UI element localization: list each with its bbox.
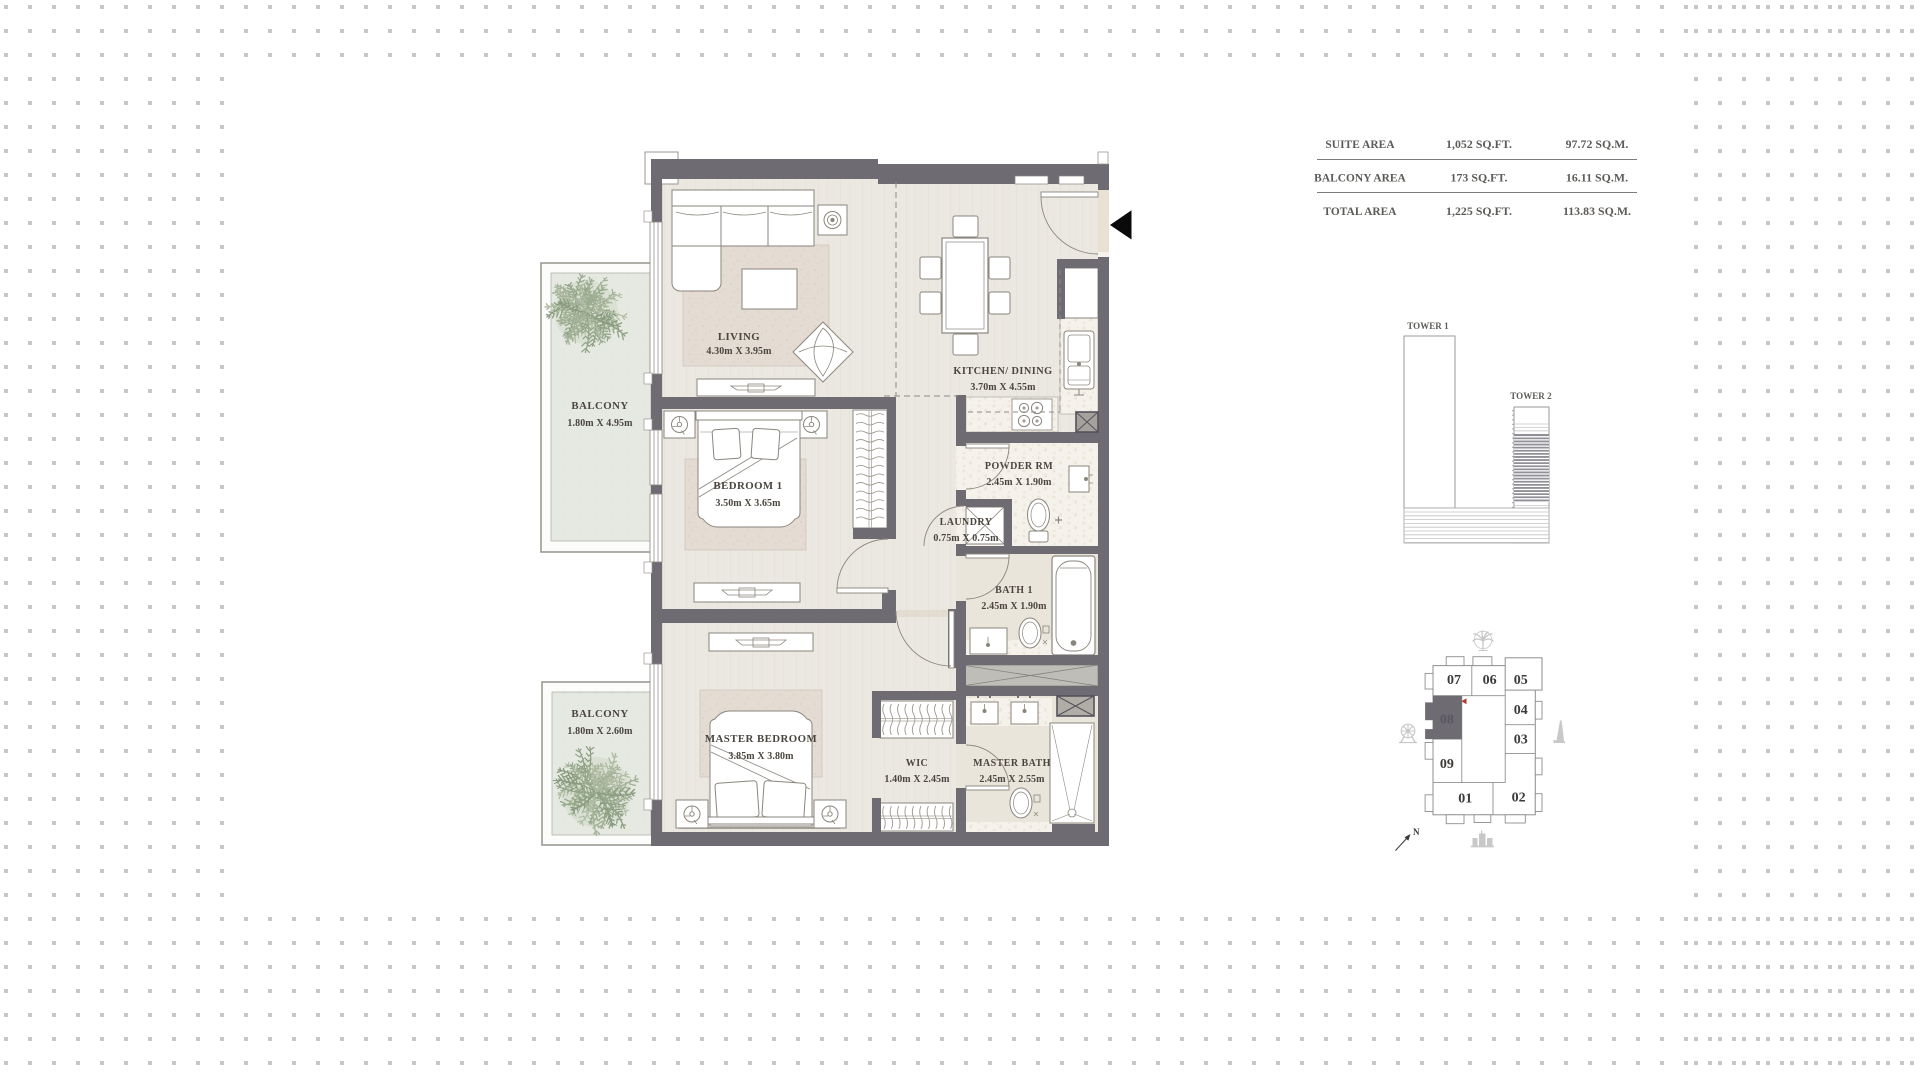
svg-text:N: N bbox=[1413, 827, 1420, 837]
svg-text:173 SQ.FT.: 173 SQ.FT. bbox=[1451, 171, 1508, 185]
svg-text:01: 01 bbox=[1458, 792, 1472, 807]
svg-text:1.80m X 4.95m: 1.80m X 4.95m bbox=[567, 418, 633, 429]
svg-text:1.40m X 2.45m: 1.40m X 2.45m bbox=[884, 774, 950, 785]
svg-text:BEDROOM 1: BEDROOM 1 bbox=[713, 480, 782, 492]
svg-text:WIC: WIC bbox=[906, 758, 928, 769]
svg-text:04: 04 bbox=[1514, 703, 1528, 718]
svg-text:09: 09 bbox=[1440, 757, 1454, 772]
svg-text:BALCONY AREA: BALCONY AREA bbox=[1314, 173, 1406, 185]
svg-text:08: 08 bbox=[1440, 713, 1454, 728]
svg-text:1.80m X 2.60m: 1.80m X 2.60m bbox=[567, 726, 633, 737]
svg-text:KITCHEN/ DINING: KITCHEN/ DINING bbox=[953, 366, 1052, 377]
svg-text:TOTAL AREA: TOTAL AREA bbox=[1323, 206, 1397, 218]
svg-text:BALCONY: BALCONY bbox=[571, 708, 628, 720]
svg-text:3.85m X 3.80m: 3.85m X 3.80m bbox=[728, 751, 794, 762]
svg-text:BATH 1: BATH 1 bbox=[995, 585, 1033, 596]
svg-text:1,225 SQ.FT.: 1,225 SQ.FT. bbox=[1446, 204, 1512, 218]
svg-text:3.70m X 4.55m: 3.70m X 4.55m bbox=[970, 382, 1036, 393]
svg-text:TOWER 2: TOWER 2 bbox=[1510, 391, 1552, 401]
svg-text:MASTER BATH: MASTER BATH bbox=[973, 758, 1051, 769]
svg-text:16.11 SQ.M.: 16.11 SQ.M. bbox=[1566, 171, 1628, 185]
svg-text:3.50m X 3.65m: 3.50m X 3.65m bbox=[715, 498, 781, 509]
svg-text:SUITE AREA: SUITE AREA bbox=[1325, 139, 1395, 151]
svg-text:05: 05 bbox=[1514, 673, 1528, 688]
svg-text:BALCONY: BALCONY bbox=[571, 400, 628, 412]
svg-text:MASTER BEDROOM: MASTER BEDROOM bbox=[705, 733, 817, 745]
svg-text:1,052 SQ.FT.: 1,052 SQ.FT. bbox=[1446, 137, 1512, 151]
svg-text:06: 06 bbox=[1483, 673, 1497, 688]
svg-text:03: 03 bbox=[1514, 733, 1528, 748]
svg-text:LAUNDRY: LAUNDRY bbox=[940, 517, 993, 528]
svg-text:0.75m X 0.75m: 0.75m X 0.75m bbox=[933, 533, 999, 544]
svg-text:POWDER RM: POWDER RM bbox=[985, 461, 1053, 472]
svg-text:2.45m X 2.55m: 2.45m X 2.55m bbox=[979, 774, 1045, 785]
svg-text:07: 07 bbox=[1447, 673, 1461, 688]
svg-text:2.45m X 1.90m: 2.45m X 1.90m bbox=[986, 477, 1052, 488]
svg-text:97.72 SQ.M.: 97.72 SQ.M. bbox=[1566, 137, 1629, 151]
svg-text:4.30m X 3.95m: 4.30m X 3.95m bbox=[706, 346, 772, 357]
svg-text:02: 02 bbox=[1512, 791, 1526, 806]
svg-text:TOWER 1: TOWER 1 bbox=[1407, 321, 1449, 331]
svg-text:113.83 SQ.M.: 113.83 SQ.M. bbox=[1563, 204, 1631, 218]
svg-text:LIVING: LIVING bbox=[718, 331, 760, 343]
svg-text:2.45m X 1.90m: 2.45m X 1.90m bbox=[981, 601, 1047, 612]
